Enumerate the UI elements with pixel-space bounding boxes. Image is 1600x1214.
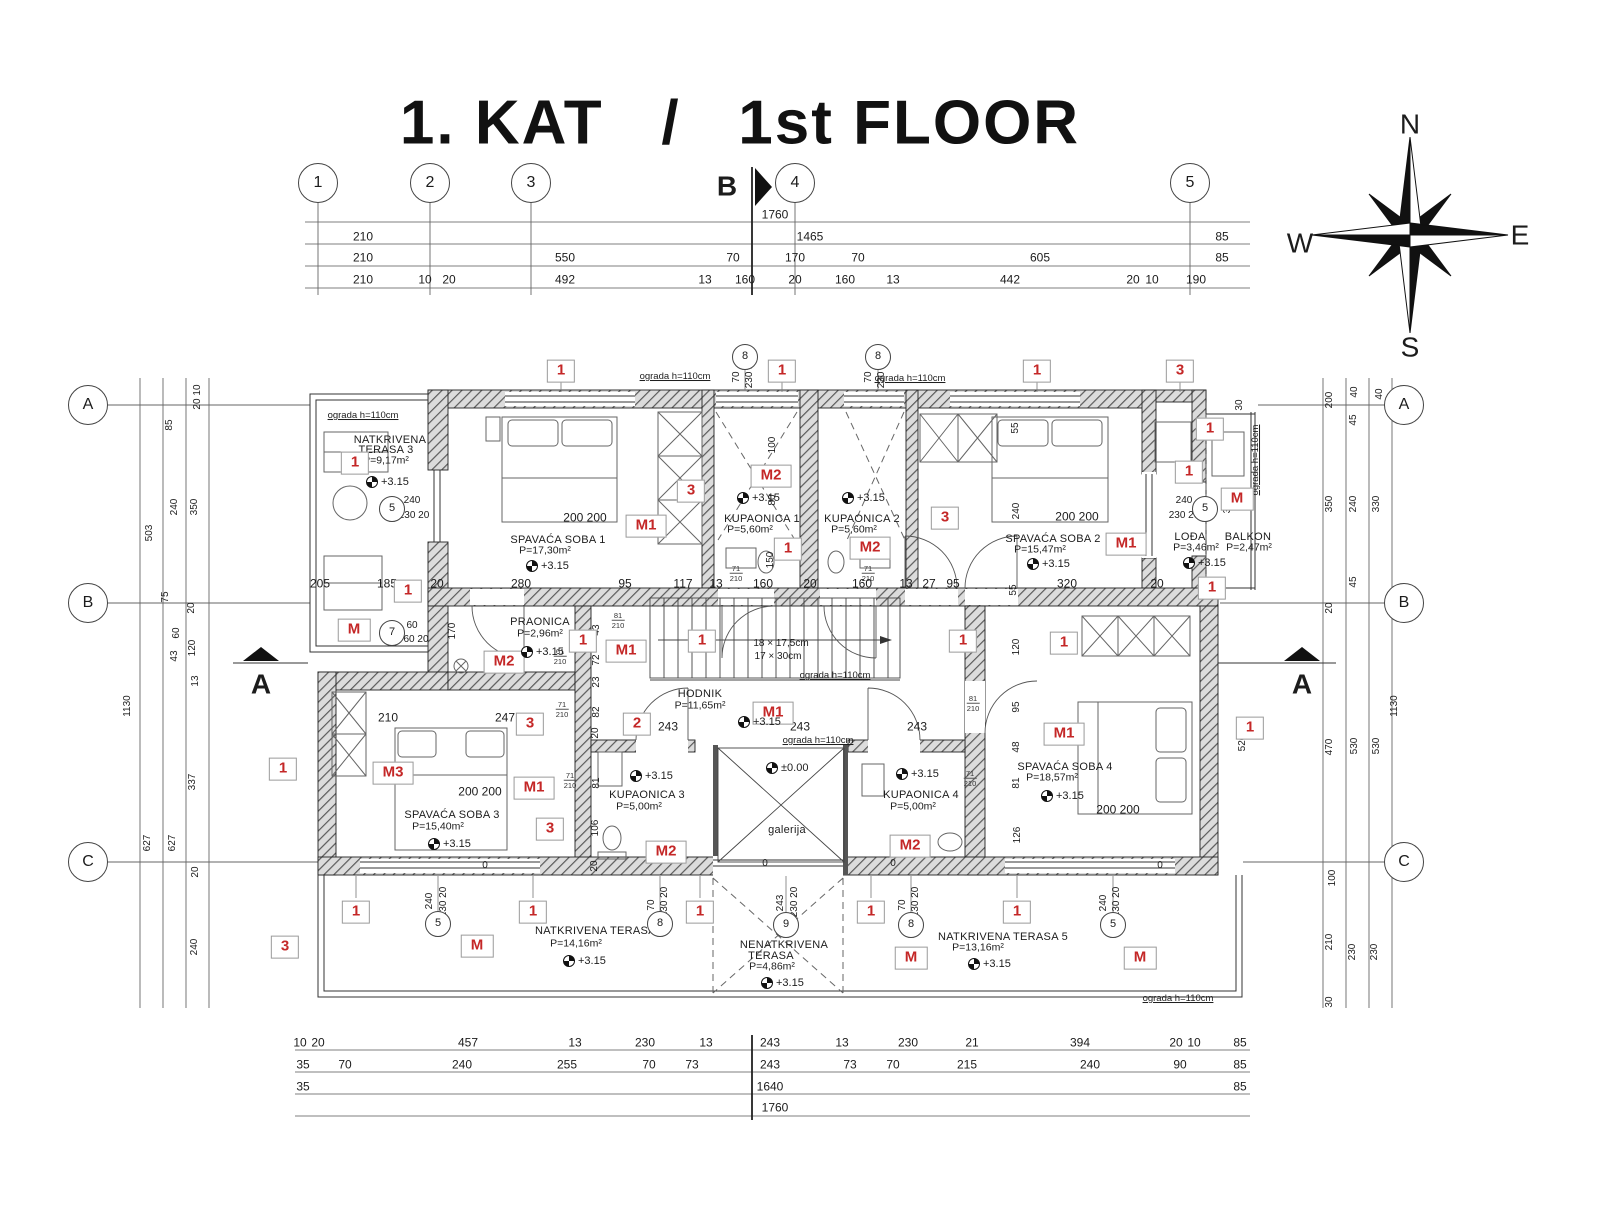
door-size-tag: 71210 xyxy=(964,770,977,789)
compass-west-label: W xyxy=(1287,228,1313,257)
position-marker-1: 1 xyxy=(394,580,422,603)
dim-label: 1760 xyxy=(762,209,789,222)
level-marker: +3.15 xyxy=(1183,557,1226,569)
level-dot-icon xyxy=(766,762,778,774)
position-marker-3: 3 xyxy=(536,818,564,841)
vert-dim-label: 503 xyxy=(145,525,156,542)
vert-dim-label: 95 xyxy=(1012,701,1023,712)
level-value: +3.15 xyxy=(911,768,939,780)
position-marker-1: 1 xyxy=(1196,418,1224,441)
position-marker-1: 1 xyxy=(1236,717,1264,740)
position-marker-m: M xyxy=(1221,488,1254,511)
dim-label: 1760 xyxy=(762,1102,789,1115)
section-letter-B: B xyxy=(717,171,737,200)
vert-dim-label: 70 xyxy=(647,899,658,910)
ref-circle-5: 5 xyxy=(425,911,451,937)
door-width: 81 xyxy=(612,612,625,620)
dim-label: 20 xyxy=(1150,578,1163,591)
level-marker: +3.15 xyxy=(968,958,1011,970)
position-marker-1: 1 xyxy=(1050,632,1078,655)
dim-label: 13 xyxy=(709,578,722,591)
room-area: P=2,96m² xyxy=(517,628,563,639)
dim-label: 70 xyxy=(886,1059,899,1072)
vert-dim-label: 120 xyxy=(1012,639,1023,656)
dim-label: 85 xyxy=(1233,1059,1246,1072)
dim-label: 13 xyxy=(698,274,711,287)
level-value: +3.15 xyxy=(381,476,409,488)
grid-bubble-left-A: A xyxy=(68,385,108,425)
dim-label: 21 xyxy=(965,1037,978,1050)
door-height: 210 xyxy=(730,573,743,583)
dim-label: 457 xyxy=(458,1037,478,1050)
compass-north-label: N xyxy=(1400,109,1420,138)
vert-dim-label: 30 xyxy=(1235,399,1246,410)
level-value: +3.15 xyxy=(752,492,780,504)
stair-note: 18 × 17,5cm xyxy=(753,639,808,650)
vert-dim-label: 60 xyxy=(172,627,183,638)
level-value: +3.15 xyxy=(1198,557,1226,569)
level-marker: +3.15 xyxy=(563,955,606,967)
dim-label: 70 xyxy=(851,252,864,265)
room-area: P=2,47m² xyxy=(1226,542,1272,553)
position-marker-m1: M1 xyxy=(606,640,647,663)
dim-label: 200 200 xyxy=(458,786,501,799)
vert-dim-label: 230 xyxy=(1370,944,1381,961)
dim-label: 240 xyxy=(404,496,421,507)
dim-label: 210 xyxy=(353,252,373,265)
position-marker-1: 1 xyxy=(857,901,885,924)
dim-label: 0 xyxy=(890,859,896,870)
dim-label: 1465 xyxy=(797,231,824,244)
position-marker-1: 1 xyxy=(1023,360,1051,383)
vert-dim-label: 20 xyxy=(590,860,601,871)
vert-dim-label: 20 xyxy=(191,866,202,877)
vert-dim-label: 240 xyxy=(1012,503,1023,520)
dim-label: 117 xyxy=(673,578,692,591)
vert-dim-label: 470 xyxy=(1325,739,1336,756)
dim-label: 210 xyxy=(378,712,398,725)
dim-label: 243 xyxy=(760,1059,780,1072)
door-size-tag: 71210 xyxy=(564,772,577,791)
level-marker: +3.15 xyxy=(896,768,939,780)
position-marker-1: 1 xyxy=(768,360,796,383)
grid-bubble-right-B: B xyxy=(1384,583,1424,623)
dim-label: 73 xyxy=(685,1059,698,1072)
door-size-tag: 81210 xyxy=(967,695,980,714)
ograda-label: ograda h=110cm xyxy=(1143,994,1214,1004)
dim-label: 95 xyxy=(946,578,959,591)
grid-bubble-right-C: C xyxy=(1384,842,1424,882)
vert-dim-label: 1130 xyxy=(123,695,134,717)
vert-dim-label: 230 xyxy=(1348,944,1359,961)
level-value: +3.15 xyxy=(753,716,781,728)
ograda-label: ograda h=110cm xyxy=(783,736,854,746)
level-value: +3.15 xyxy=(1056,790,1084,802)
vert-dim-label: 48 xyxy=(1012,741,1023,752)
level-marker: +3.15 xyxy=(737,492,780,504)
level-marker: +3.15 xyxy=(1041,790,1084,802)
dim-label: 170 xyxy=(785,252,805,265)
door-height: 210 xyxy=(554,656,567,666)
vert-dim-label: ograda h=110cm xyxy=(1251,425,1261,496)
dim-label: 550 xyxy=(555,252,575,265)
level-value: +3.15 xyxy=(645,770,673,782)
vert-dim-label: 85 xyxy=(165,419,176,430)
position-marker-m2: M2 xyxy=(484,651,525,674)
vert-dim-label: 100 xyxy=(1328,870,1339,887)
position-marker-1: 1 xyxy=(342,901,370,924)
door-width: 81 xyxy=(967,695,980,703)
vert-dim-label: 40 xyxy=(1375,388,1386,399)
level-dot-icon xyxy=(761,977,773,989)
vert-dim-label: 200 xyxy=(1325,392,1336,409)
room-name: NATKRIVENA TERASA 4 xyxy=(535,926,665,938)
level-marker: +3.15 xyxy=(630,770,673,782)
vert-dim-label: 13 xyxy=(191,675,202,686)
ograda-label: ograda h=110cm xyxy=(640,372,711,382)
position-marker-m: M xyxy=(1124,947,1157,970)
dim-label: 90 xyxy=(1173,1059,1186,1072)
door-height: 210 xyxy=(964,778,977,788)
vert-dim-label: 10 xyxy=(193,384,204,395)
ograda-label: ograda h=110cm xyxy=(328,411,399,421)
room-area: P=5,00m² xyxy=(890,801,936,812)
vert-dim-label: 170 xyxy=(448,623,459,640)
position-marker-1: 1 xyxy=(547,360,575,383)
compass-east-label: E xyxy=(1511,220,1530,249)
dim-label: 247 xyxy=(495,712,515,725)
position-marker-m1: M1 xyxy=(626,515,667,538)
section-letter-A: A xyxy=(251,669,271,698)
ref-circle-8: 8 xyxy=(732,344,758,370)
dim-label: 0 xyxy=(1157,861,1163,872)
vert-dim-label: 106 xyxy=(591,820,602,837)
level-dot-icon xyxy=(737,492,749,504)
dim-label: 20 xyxy=(1126,274,1139,287)
position-marker-3: 3 xyxy=(1166,360,1194,383)
vert-dim-label: 530 xyxy=(1350,738,1361,755)
dim-label: 20 xyxy=(311,1037,324,1050)
dim-label: 10 xyxy=(418,274,431,287)
level-dot-icon xyxy=(968,958,980,970)
vert-dim-label: 81 xyxy=(592,777,603,788)
level-value: +3.15 xyxy=(443,838,471,850)
door-size-tag: 61210 xyxy=(554,648,567,667)
dim-label: 70 xyxy=(726,252,739,265)
level-value: +3.15 xyxy=(541,560,569,572)
vert-dim-label: 240 xyxy=(1349,496,1360,513)
vert-dim-label: 126 xyxy=(1013,827,1024,844)
door-size-tag: 81210 xyxy=(612,612,625,631)
dim-label: 243 xyxy=(907,721,927,734)
door-size-tag: 71210 xyxy=(556,701,569,720)
dim-label: 230 xyxy=(898,1037,918,1050)
ref-circle-8: 8 xyxy=(865,344,891,370)
room-area: P=5,00m² xyxy=(616,801,662,812)
room-area: P=15,40m² xyxy=(412,821,464,832)
vert-dim-label: 627 xyxy=(143,835,154,852)
vert-dim-label: 55 xyxy=(1009,584,1020,595)
dim-label: 27 xyxy=(922,578,935,591)
vert-dim-label: 330 xyxy=(1372,496,1383,513)
vert-dim-label: 20 xyxy=(193,398,204,409)
dim-label: 230 xyxy=(635,1037,655,1050)
position-marker-m: M xyxy=(895,947,928,970)
position-marker-3: 3 xyxy=(271,936,299,959)
dim-label: 85 xyxy=(1215,252,1228,265)
grid-bubble-left-B: B xyxy=(68,583,108,623)
vert-dim-label: 240 xyxy=(190,939,201,956)
dim-label: 20 xyxy=(1169,1037,1182,1050)
ref-circle-8: 8 xyxy=(647,911,673,937)
position-marker-1: 1 xyxy=(949,630,977,653)
dim-label: 13 xyxy=(899,578,912,591)
level-dot-icon xyxy=(630,770,642,782)
door-height: 210 xyxy=(612,620,625,630)
vert-dim-label: 350 xyxy=(1325,496,1336,513)
vert-dim-label: 627 xyxy=(168,835,179,852)
compass-south-label: S xyxy=(1401,332,1420,361)
position-marker-m3: M3 xyxy=(373,762,414,785)
grid-bubble-left-C: C xyxy=(68,842,108,882)
dim-label: 200 200 xyxy=(1096,804,1139,817)
level-dot-icon xyxy=(526,560,538,572)
level-value: +3.15 xyxy=(776,977,804,989)
vert-dim-label: 23 xyxy=(592,676,603,687)
position-marker-m1: M1 xyxy=(514,777,555,800)
level-dot-icon xyxy=(366,476,378,488)
vert-dim-label: 75 xyxy=(161,591,172,602)
vert-dim-label: 350 xyxy=(190,499,201,516)
position-marker-3: 3 xyxy=(516,713,544,736)
dim-label: 85 xyxy=(1233,1037,1246,1050)
room-area: P=5,60m² xyxy=(831,524,877,535)
position-marker-1: 1 xyxy=(688,630,716,653)
room-area: P=18,57m² xyxy=(1026,772,1078,783)
vert-dim-label: 1130 xyxy=(1390,695,1401,717)
door-height: 210 xyxy=(564,780,577,790)
vert-dim-label: 72 xyxy=(592,654,603,665)
position-marker-m: M xyxy=(338,619,371,642)
level-dot-icon xyxy=(1183,557,1195,569)
dim-label: 605 xyxy=(1030,252,1050,265)
grid-bubble-4: 4 xyxy=(775,163,815,203)
grid-bubble-3: 3 xyxy=(511,163,551,203)
dim-label: 394 xyxy=(1070,1037,1090,1050)
dim-label: 320 xyxy=(1057,578,1077,591)
dim-label: 0 xyxy=(762,859,768,870)
door-width: 71 xyxy=(964,770,977,778)
door-height: 210 xyxy=(556,709,569,719)
door-height: 210 xyxy=(862,573,875,583)
vert-dim-label: 70 xyxy=(864,371,875,382)
stair-note: 17 × 30cm xyxy=(755,652,802,663)
dim-label: 20 xyxy=(430,578,443,591)
position-marker-1: 1 xyxy=(519,901,547,924)
dim-label: 95 xyxy=(618,578,631,591)
dim-label: 20 xyxy=(442,274,455,287)
floor-plan-sheet: 1. KAT / 1st FLOOR N E S W 1760210146585… xyxy=(0,0,1600,1214)
ref-circle-5: 5 xyxy=(1100,912,1126,938)
position-marker-1: 1 xyxy=(1198,577,1226,600)
dim-label: 240 xyxy=(452,1059,472,1072)
position-marker-1: 1 xyxy=(569,630,597,653)
dim-label: 60 xyxy=(406,621,417,632)
room-area: P=4,86m² xyxy=(749,961,795,972)
position-marker-1: 1 xyxy=(341,452,369,475)
room-area: P=3,46m² xyxy=(1173,542,1219,553)
level-marker: +3.15 xyxy=(1027,558,1070,570)
vert-dim-label: 70 xyxy=(898,899,909,910)
dim-label: 13 xyxy=(568,1037,581,1050)
vert-dim-label: 82 xyxy=(592,706,603,717)
dim-label: 10 xyxy=(293,1037,306,1050)
section-letter-A: A xyxy=(1292,669,1312,698)
vert-dim-label: 20 xyxy=(591,727,602,738)
level-dot-icon xyxy=(1027,558,1039,570)
level-dot-icon xyxy=(521,646,533,658)
level-value: +3.15 xyxy=(857,492,885,504)
dim-label: 210 xyxy=(353,274,373,287)
compass-rose xyxy=(1312,137,1508,333)
vert-dim-label: 40 xyxy=(1350,386,1361,397)
level-marker: +3.15 xyxy=(738,716,781,728)
dim-label: 13 xyxy=(835,1037,848,1050)
vert-dim-label: 45 xyxy=(1349,576,1360,587)
dim-label: 20 xyxy=(803,578,816,591)
position-marker-1: 1 xyxy=(269,758,297,781)
position-marker-1: 1 xyxy=(774,538,802,561)
ref-circle-8: 8 xyxy=(898,912,924,938)
dim-label: 280 xyxy=(511,578,531,591)
dim-label: 160 xyxy=(753,578,773,591)
dim-label: 10 xyxy=(1145,274,1158,287)
level-marker: +3.15 xyxy=(761,977,804,989)
level-dot-icon xyxy=(842,492,854,504)
vert-dim-label: 100 xyxy=(768,437,779,454)
level-marker: +3.15 xyxy=(428,838,471,850)
door-width: 71 xyxy=(862,565,875,573)
dim-label: 442 xyxy=(1000,274,1020,287)
level-value: ±0.00 xyxy=(781,762,808,774)
dim-label: 10 xyxy=(1187,1037,1200,1050)
dim-label: 243 xyxy=(658,721,678,734)
vert-dim-label: 43 xyxy=(170,650,181,661)
ref-circle-9: 9 xyxy=(773,912,799,938)
dim-label: 35 xyxy=(296,1059,309,1072)
room-area: P=15,47m² xyxy=(1014,544,1066,555)
vert-dim-label: 243 xyxy=(776,895,787,912)
ograda-label: ograda h=110cm xyxy=(875,374,946,384)
level-marker: ±0.00 xyxy=(766,762,808,774)
level-marker: +3.15 xyxy=(842,492,885,504)
grid-bubble-right-A: A xyxy=(1384,385,1424,425)
dim-label: 255 xyxy=(557,1059,577,1072)
dim-label: 35 xyxy=(296,1081,309,1094)
ref-circle-5: 5 xyxy=(1192,496,1218,522)
room-name: galerija xyxy=(768,825,806,837)
level-dot-icon xyxy=(1041,790,1053,802)
position-marker-1: 1 xyxy=(1175,461,1203,484)
room-area: P=5,60m² xyxy=(727,524,773,535)
dim-label: 20 xyxy=(788,274,801,287)
section-b-flag xyxy=(755,168,772,206)
door-size-tag: 71210 xyxy=(730,565,743,584)
dim-label: 60 20 xyxy=(403,635,428,646)
position-marker-2: 2 xyxy=(623,713,651,736)
position-marker-1: 1 xyxy=(1003,901,1031,924)
position-marker-3: 3 xyxy=(677,480,705,503)
room-area: P=13,16m² xyxy=(952,942,1004,953)
vert-dim-label: 120 xyxy=(188,640,199,657)
vert-dim-label: 240 xyxy=(170,499,181,516)
dim-label: 73 xyxy=(843,1059,856,1072)
dim-label: 240 xyxy=(1176,496,1193,507)
position-marker-m1: M1 xyxy=(1044,723,1085,746)
dim-label: 205 xyxy=(310,578,330,591)
grid-bubble-2: 2 xyxy=(410,163,450,203)
level-dot-icon xyxy=(896,768,908,780)
vert-dim-label: 81 xyxy=(1012,777,1023,788)
grid-bubble-1: 1 xyxy=(298,163,338,203)
gallery-wall xyxy=(713,745,718,875)
position-marker-3: 3 xyxy=(931,507,959,530)
ograda-label: ograda h=110cm xyxy=(800,671,871,681)
door-width: 71 xyxy=(564,772,577,780)
room-area: P=14,16m² xyxy=(550,938,602,949)
level-marker: +3.15 xyxy=(366,476,409,488)
vert-dim-label: 240 xyxy=(425,893,436,910)
vert-dim-label: 30 xyxy=(1325,996,1336,1007)
dim-label: 13 xyxy=(886,274,899,287)
position-marker-m2: M2 xyxy=(751,465,792,488)
dim-label: 210 xyxy=(353,231,373,244)
door-size-tag: 71210 xyxy=(862,565,875,584)
grid-bubble-5: 5 xyxy=(1170,163,1210,203)
level-marker: +3.15 xyxy=(526,560,569,572)
vert-dim-label: 210 xyxy=(1325,934,1336,951)
position-marker-1: 1 xyxy=(686,901,714,924)
door-height: 210 xyxy=(967,703,980,713)
dim-label: 85 xyxy=(1215,231,1228,244)
level-value: +3.15 xyxy=(1042,558,1070,570)
dim-label: 13 xyxy=(699,1037,712,1050)
dim-label: 70 xyxy=(642,1059,655,1072)
door-width: 71 xyxy=(556,701,569,709)
ref-circle-7: 7 xyxy=(379,620,405,646)
vert-dim-label: 45 xyxy=(1349,414,1360,425)
sheet-title: 1. KAT / 1st FLOOR xyxy=(400,90,1080,155)
dim-label: 243 xyxy=(760,1037,780,1050)
level-dot-icon xyxy=(428,838,440,850)
vert-dim-label: 240 xyxy=(1099,895,1110,912)
dim-label: 215 xyxy=(957,1059,977,1072)
room-area: P=11,65m² xyxy=(675,700,726,711)
ref-circle-5: 5 xyxy=(379,496,405,522)
dim-label: 160 xyxy=(835,274,855,287)
position-marker-m: M xyxy=(461,935,494,958)
vert-dim-label: 530 xyxy=(1372,738,1383,755)
position-marker-m2: M2 xyxy=(646,841,687,864)
vert-dim-label: 20 xyxy=(187,602,198,613)
dim-label: 85 xyxy=(1233,1081,1246,1094)
dim-label: 200 200 xyxy=(1055,511,1098,524)
dim-label: 190 xyxy=(1186,274,1206,287)
level-value: +3.15 xyxy=(578,955,606,967)
position-marker-m1: M1 xyxy=(1106,533,1147,556)
vert-dim-label: 55 xyxy=(1011,422,1022,433)
door-width: 61 xyxy=(554,648,567,656)
